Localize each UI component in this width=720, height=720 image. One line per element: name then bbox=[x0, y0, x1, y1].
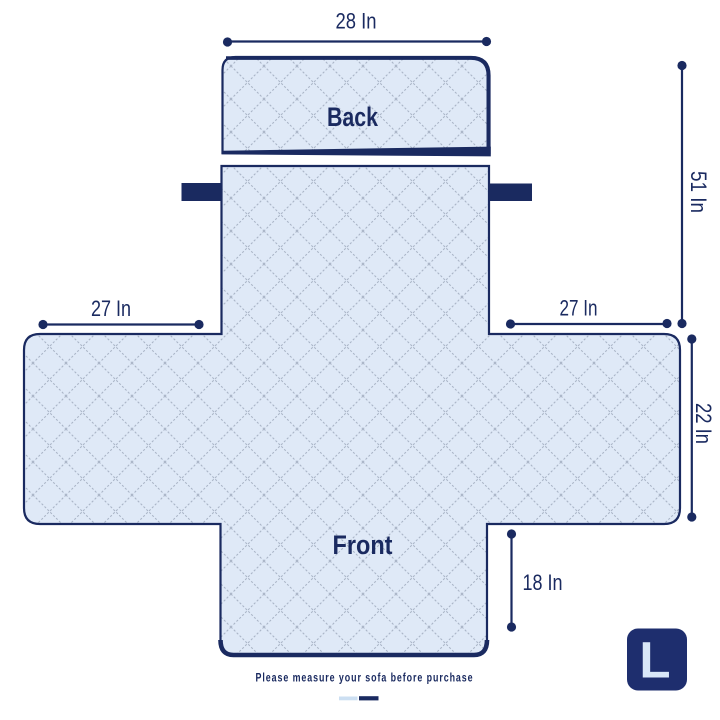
svg-text:51 In: 51 In bbox=[686, 171, 711, 213]
svg-text:18 In: 18 In bbox=[523, 570, 563, 595]
svg-text:28 In: 28 In bbox=[336, 9, 377, 34]
svg-text:Please measure your sofa befor: Please measure your sofa before purchase bbox=[256, 673, 474, 685]
svg-text:27 In: 27 In bbox=[91, 296, 131, 321]
svg-text:22 In: 22 In bbox=[691, 403, 716, 444]
svg-text:27 In: 27 In bbox=[560, 296, 598, 321]
svg-text:L: L bbox=[639, 632, 670, 689]
svg-text:Back: Back bbox=[327, 102, 379, 132]
svg-text:Front: Front bbox=[333, 530, 393, 560]
